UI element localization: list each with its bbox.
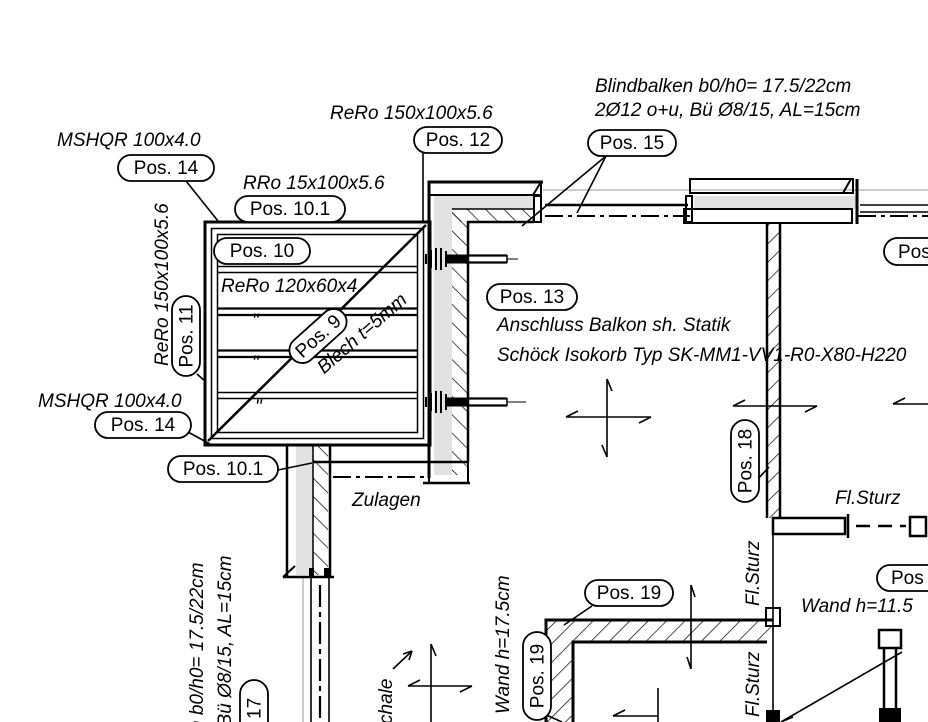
pos-label-101-bottom: Pos. 10.1 <box>168 456 278 482</box>
wall-opening-top <box>545 196 692 222</box>
pos-label-11: Pos. 11 <box>172 296 200 376</box>
pos-label-14-bottom-text: Pos. 14 <box>111 415 176 436</box>
pos-label-10-text: Pos. 10 <box>230 241 294 262</box>
note-mshqr-bottom: MSHQR 100x4.0 <box>38 391 182 412</box>
leader-pos14-top <box>186 181 218 221</box>
note-rero-120: ReRo 120x60x4 <box>221 276 357 297</box>
note-blindbalken-line2: 2Ø12 o+u, Bü Ø8/15, AL=15cm <box>594 100 860 121</box>
pos-label-13-text: Pos. 13 <box>500 287 564 308</box>
pos-label-cut-right-top: Pos <box>884 238 928 265</box>
centerlines <box>320 216 928 722</box>
note-anschluss: Anschluss Balkon sh. Statik <box>496 315 732 336</box>
note-rero-top: ReRo 150x100x5.6 <box>330 103 493 124</box>
note-wand-h175: Wand h=17.5cm <box>493 575 514 714</box>
pos-label-19-top: Pos. 19 <box>585 580 673 606</box>
pos-label-12-text: Pos. 12 <box>426 130 490 151</box>
note-rero-left-rotated: ReRo 150x100x5.6 <box>152 203 173 366</box>
walls <box>283 179 928 722</box>
note-fl-sturz-rot2: Fl.Sturz <box>743 651 764 717</box>
pos-label-19-top-text: Pos. 19 <box>597 583 661 604</box>
pos-label-18-text: Pos. 18 <box>736 429 757 493</box>
note-blindbalken-line1: Blindbalken b0/h0= 17.5/22cm <box>595 76 851 97</box>
pos-label-10: Pos. 10 <box>214 238 310 264</box>
note-mshqr-top: MSHQR 100x4.0 <box>57 130 201 151</box>
pos-label-18: Pos. 18 <box>731 420 759 502</box>
pos-label-14-bottom: Pos. 14 <box>95 412 191 438</box>
wall-corner-pos19 <box>546 620 773 722</box>
leader-schale <box>393 651 412 669</box>
pos-label-17-cut-text: 17 <box>245 698 266 719</box>
pos-label-17-cut: 17 <box>240 680 268 722</box>
wall-stem-below-frame <box>283 445 334 722</box>
pos-label-101-bottom-text: Pos. 10.1 <box>183 459 263 480</box>
pos-label-15: Pos. 15 <box>588 130 676 156</box>
span-cross-center <box>566 379 651 457</box>
pos-label-cut-right-top-text: Pos <box>898 242 928 263</box>
note-blind-rotated-line1: n b0/h0= 17.5/22cm <box>187 563 208 722</box>
pos-label-cut-right-bottom-text: Pos <box>891 568 924 589</box>
note-rro: RRo 15x100x5.6 <box>243 173 385 194</box>
pos-label-cut-right-bottom: Pos <box>877 565 928 591</box>
anchor-bolt-lower <box>426 391 526 413</box>
wall-bottom-right <box>879 630 901 722</box>
note-schoeck: Schöck Isokorb Typ SK-MM1-VV1-R0-X80-H22… <box>497 345 907 366</box>
pos-label-15-text: Pos. 15 <box>600 133 664 154</box>
pos-label-13: Pos. 13 <box>487 284 577 310</box>
structural-detail-drawing: Blindbalken b0/h0= 17.5/22cm 2Ø12 o+u, B… <box>0 0 928 722</box>
ditto-mark-3: " <box>255 397 263 418</box>
note-fl-sturz-rot1: Fl.Sturz <box>743 540 764 606</box>
note-schale-fragment: chale <box>376 679 397 722</box>
span-arrow-right-edge <box>893 398 928 404</box>
note-wand-h115: Wand h=11.5 <box>801 596 913 617</box>
note-fl-sturz: Fl.Sturz <box>835 488 901 509</box>
wall-block-right <box>684 179 928 224</box>
leader-pos14-bottom <box>188 432 210 444</box>
note-blind-rotated-line2: , Bü Ø8/15, AL=15cm <box>215 556 236 722</box>
pos-label-14-top-text: Pos. 14 <box>134 158 199 179</box>
span-arrow-bottom-cut <box>613 688 658 722</box>
note-zulagen: Zulagen <box>351 490 421 511</box>
pos-label-14-top: Pos. 14 <box>118 155 214 181</box>
pos-label-12: Pos. 12 <box>414 127 502 153</box>
span-cross-bottom <box>408 644 472 722</box>
pos-label-101-top: Pos. 10.1 <box>235 196 345 222</box>
pos-label-101-top-text: Pos. 10.1 <box>250 199 330 220</box>
cad-drawing-canvas: Blindbalken b0/h0= 17.5/22cm 2Ø12 o+u, B… <box>0 0 928 722</box>
pos-label-19-side: Pos. 19 <box>523 632 551 720</box>
span-arrows <box>408 379 928 722</box>
pos-label-19-side-text: Pos. 19 <box>528 644 549 708</box>
pos-label-11-text: Pos. 11 <box>177 304 198 367</box>
